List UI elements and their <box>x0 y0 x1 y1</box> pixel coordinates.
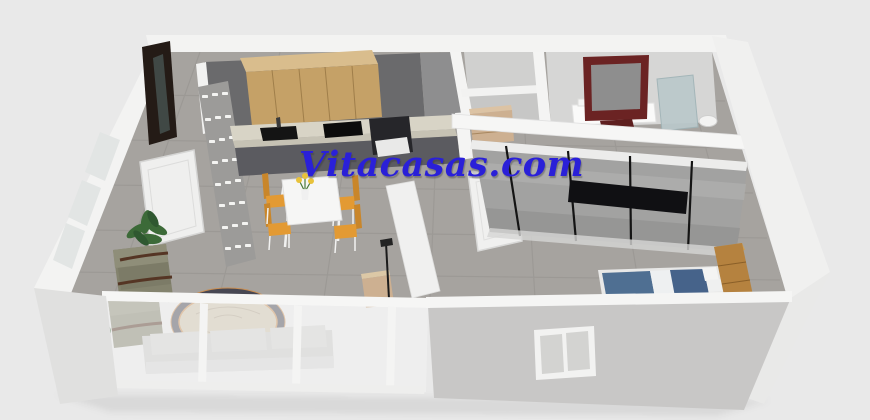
bedroom-window-pane-2 <box>566 331 590 371</box>
balcony-glass-wall <box>34 288 430 404</box>
dining-chair-4-seat <box>334 224 357 239</box>
toilet <box>699 116 717 127</box>
glass-panels <box>106 301 428 392</box>
flower-2 <box>302 173 308 179</box>
kitchen-sink <box>260 126 298 141</box>
back-wall-cap <box>146 35 730 52</box>
front-wall-face <box>428 300 790 410</box>
cooktop <box>323 121 363 138</box>
maroon-mirror-glass <box>591 63 641 111</box>
floorplan-render: Vitacasas.com <box>0 0 870 420</box>
pillow-1 <box>702 267 719 281</box>
front-wall-right <box>426 291 792 410</box>
upper-cabinets-front <box>246 64 382 126</box>
bedroom-window-pane-1 <box>540 334 564 374</box>
flower-1 <box>296 177 302 183</box>
lower-left-wall <box>34 288 118 404</box>
floorplan-svg <box>0 0 870 420</box>
flower-3 <box>308 178 314 184</box>
glass-shower-panel <box>657 75 698 131</box>
flower-vase <box>301 189 309 200</box>
